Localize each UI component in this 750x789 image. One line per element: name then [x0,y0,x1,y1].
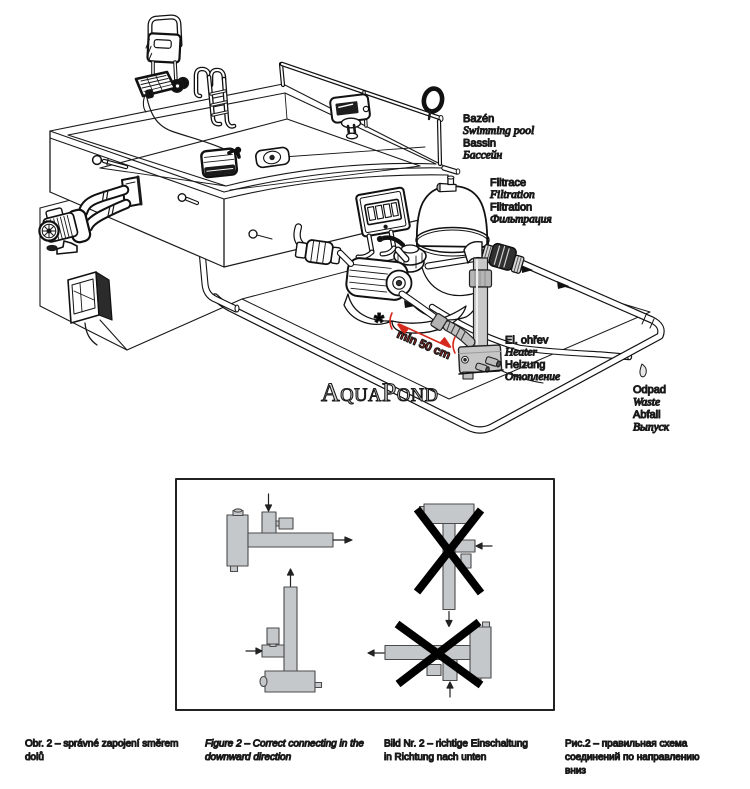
svg-text:Obr. 2 – správné zapojení směr: Obr. 2 – správné zapojení směrem [25,739,178,750]
svg-text:Waste: Waste [633,397,660,409]
svg-text:downward direction: downward direction [205,752,292,763]
svg-text:соединений по направлению: соединений по направлению [565,752,700,763]
svg-text:Выпуск: Выпуск [633,422,670,434]
svg-text:Bild Nr. 2 – richtige Einschal: Bild Nr. 2 – richtige Einschaltung [384,739,528,750]
svg-text:Filtrace: Filtrace [490,177,526,189]
svg-text:*: * [374,307,385,337]
svg-text:Swimming pool: Swimming pool [463,125,534,137]
svg-text:Bassin: Bassin [463,138,496,150]
svg-text:Odpad: Odpad [633,384,666,396]
svg-text:вниз: вниз [565,766,586,777]
svg-text:Heizung: Heizung [505,359,545,371]
svg-text:Фильтрация: Фильтрация [490,214,552,226]
svg-text:Bazén: Bazén [463,113,494,125]
svg-text:dolů: dolů [25,751,44,763]
svg-text:Heater: Heater [504,347,537,359]
svg-text:Figure 2 – Correct connecting: Figure 2 – Correct connecting in the [205,739,364,750]
svg-text:Бассейн: Бассейн [462,149,502,162]
svg-text:El. ohřev: El. ohřev [505,335,549,347]
svg-text:Рис.2 – правильная схема: Рис.2 – правильная схема [565,739,688,750]
svg-text:Filtration: Filtration [489,189,535,201]
svg-text:Abfall: Abfall [633,409,661,421]
svg-text:Отопление: Отопление [505,371,560,383]
svg-text:in Richtung nach unten: in Richtung nach unten [384,752,486,763]
svg-text:Filtration: Filtration [490,202,532,214]
